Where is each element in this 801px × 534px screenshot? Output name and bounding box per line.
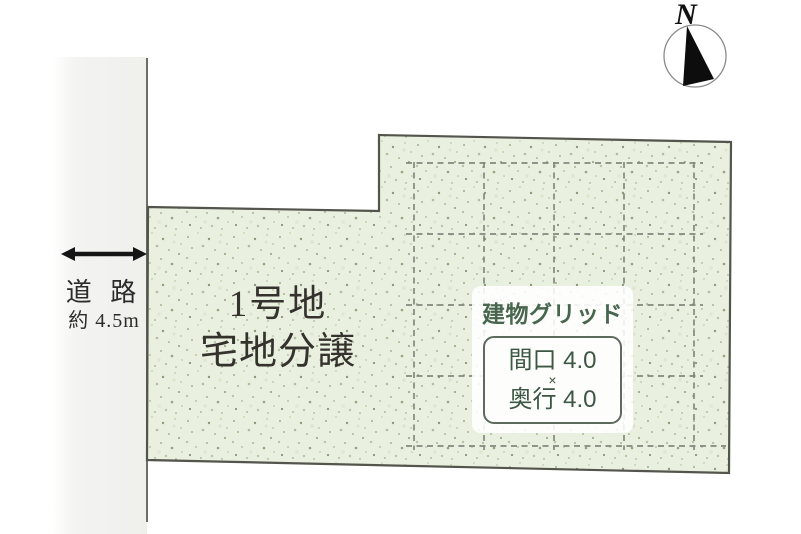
road-width-label: 約 4.5m — [46, 304, 162, 333]
grid-dimensions-box: 間口 4.0 × 奥行 4.0 — [483, 336, 622, 424]
plot-title: 1号地 — [158, 282, 398, 328]
road-width-arrow-icon — [58, 243, 150, 265]
building-grid-title: 建物グリッド — [472, 295, 633, 329]
grid-multiply-sign: × — [548, 374, 556, 387]
plot-label: 1号地 宅地分譲 — [158, 282, 398, 376]
compass-north-label: N — [664, 0, 708, 30]
grid-depth-label: 奥行 4.0 — [508, 387, 596, 413]
plot-subtitle: 宅地分譲 — [158, 328, 398, 376]
site-plan-canvas: 道 路 約 4.5m 1号地 宅地分譲 建物グリッド 間口 4.0 × 奥行 4… — [0, 0, 801, 534]
compass-icon — [652, 20, 742, 92]
grid-frontage-label: 間口 4.0 — [508, 348, 596, 374]
building-grid-label-card: 建物グリッド 間口 4.0 × 奥行 4.0 — [472, 286, 633, 433]
